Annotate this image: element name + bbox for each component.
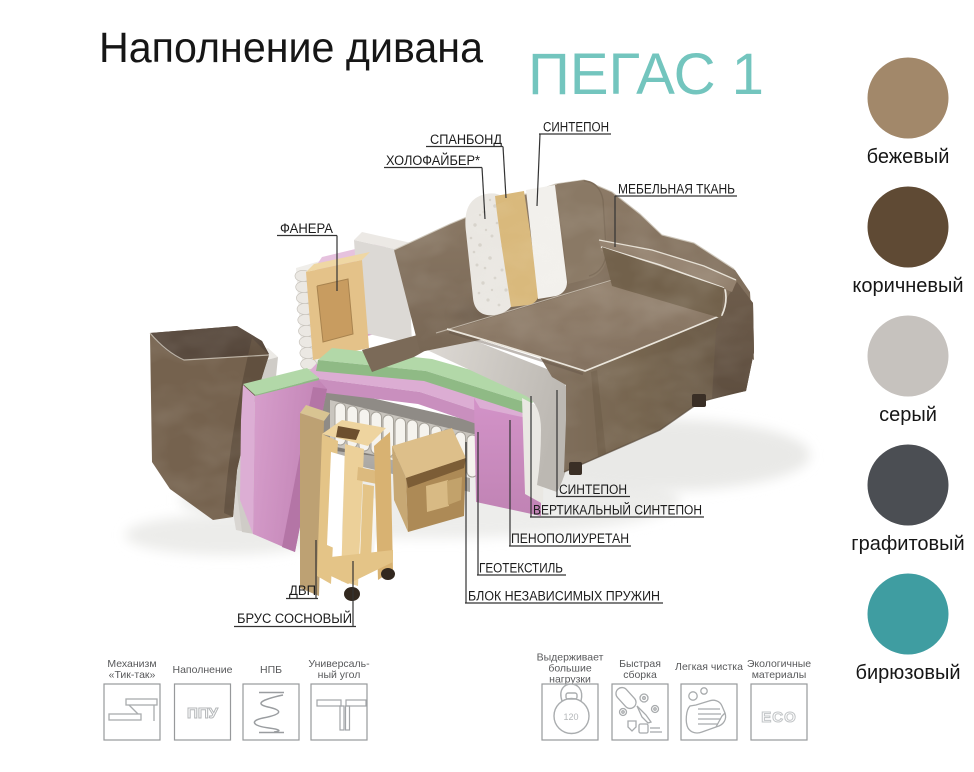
svg-text:СИНТЕПОН: СИНТЕПОН <box>559 482 627 497</box>
svg-text:бежевый: бежевый <box>867 146 950 168</box>
svg-text:графитовый: графитовый <box>851 533 964 555</box>
svg-text:сборка: сборка <box>623 669 657 681</box>
svg-text:МЕБЕЛЬНАЯ ТКАНЬ: МЕБЕЛЬНАЯ ТКАНЬ <box>618 182 735 197</box>
svg-text:СПАНБОНД: СПАНБОНД <box>430 132 502 147</box>
svg-text:ный угол: ный угол <box>318 669 361 681</box>
svg-text:НПБ: НПБ <box>260 664 282 676</box>
svg-text:«Тик-так»: «Тик-так» <box>109 669 156 681</box>
svg-text:ХОЛОФАЙБЕР*: ХОЛОФАЙБЕР* <box>386 153 481 168</box>
svg-text:БРУС СОСНОВЫЙ: БРУС СОСНОВЫЙ <box>237 611 352 626</box>
svg-text:бирюзовый: бирюзовый <box>856 662 961 684</box>
svg-text:Легкая чистка: Легкая чистка <box>675 661 743 673</box>
svg-text:ГЕОТЕКСТИЛЬ: ГЕОТЕКСТИЛЬ <box>479 561 563 576</box>
svg-text:Наполнение: Наполнение <box>173 664 233 676</box>
svg-text:ECO: ECO <box>761 709 797 726</box>
svg-text:ВЕРТИКАЛЬНЫЙ СИНТЕПОН: ВЕРТИКАЛЬНЫЙ СИНТЕПОН <box>533 503 702 518</box>
svg-text:материалы: материалы <box>752 669 807 681</box>
svg-text:ППУ: ППУ <box>187 705 219 722</box>
svg-text:ПЕГАС 1: ПЕГАС 1 <box>528 42 764 107</box>
svg-text:ФАНЕРА: ФАНЕРА <box>280 221 333 236</box>
svg-text:ПЕНОПОЛИУРЕТАН: ПЕНОПОЛИУРЕТАН <box>511 531 629 546</box>
svg-text:120: 120 <box>563 712 578 722</box>
svg-text:СИНТЕПОН: СИНТЕПОН <box>543 120 609 135</box>
svg-text:Наполнение дивана: Наполнение дивана <box>99 24 483 72</box>
svg-text:БЛОК НЕЗАВИСИМЫХ ПРУЖИН: БЛОК НЕЗАВИСИМЫХ ПРУЖИН <box>468 589 660 604</box>
svg-text:серый: серый <box>879 404 937 426</box>
svg-text:ДВП: ДВП <box>289 583 316 598</box>
svg-text:коричневый: коричневый <box>852 275 963 297</box>
